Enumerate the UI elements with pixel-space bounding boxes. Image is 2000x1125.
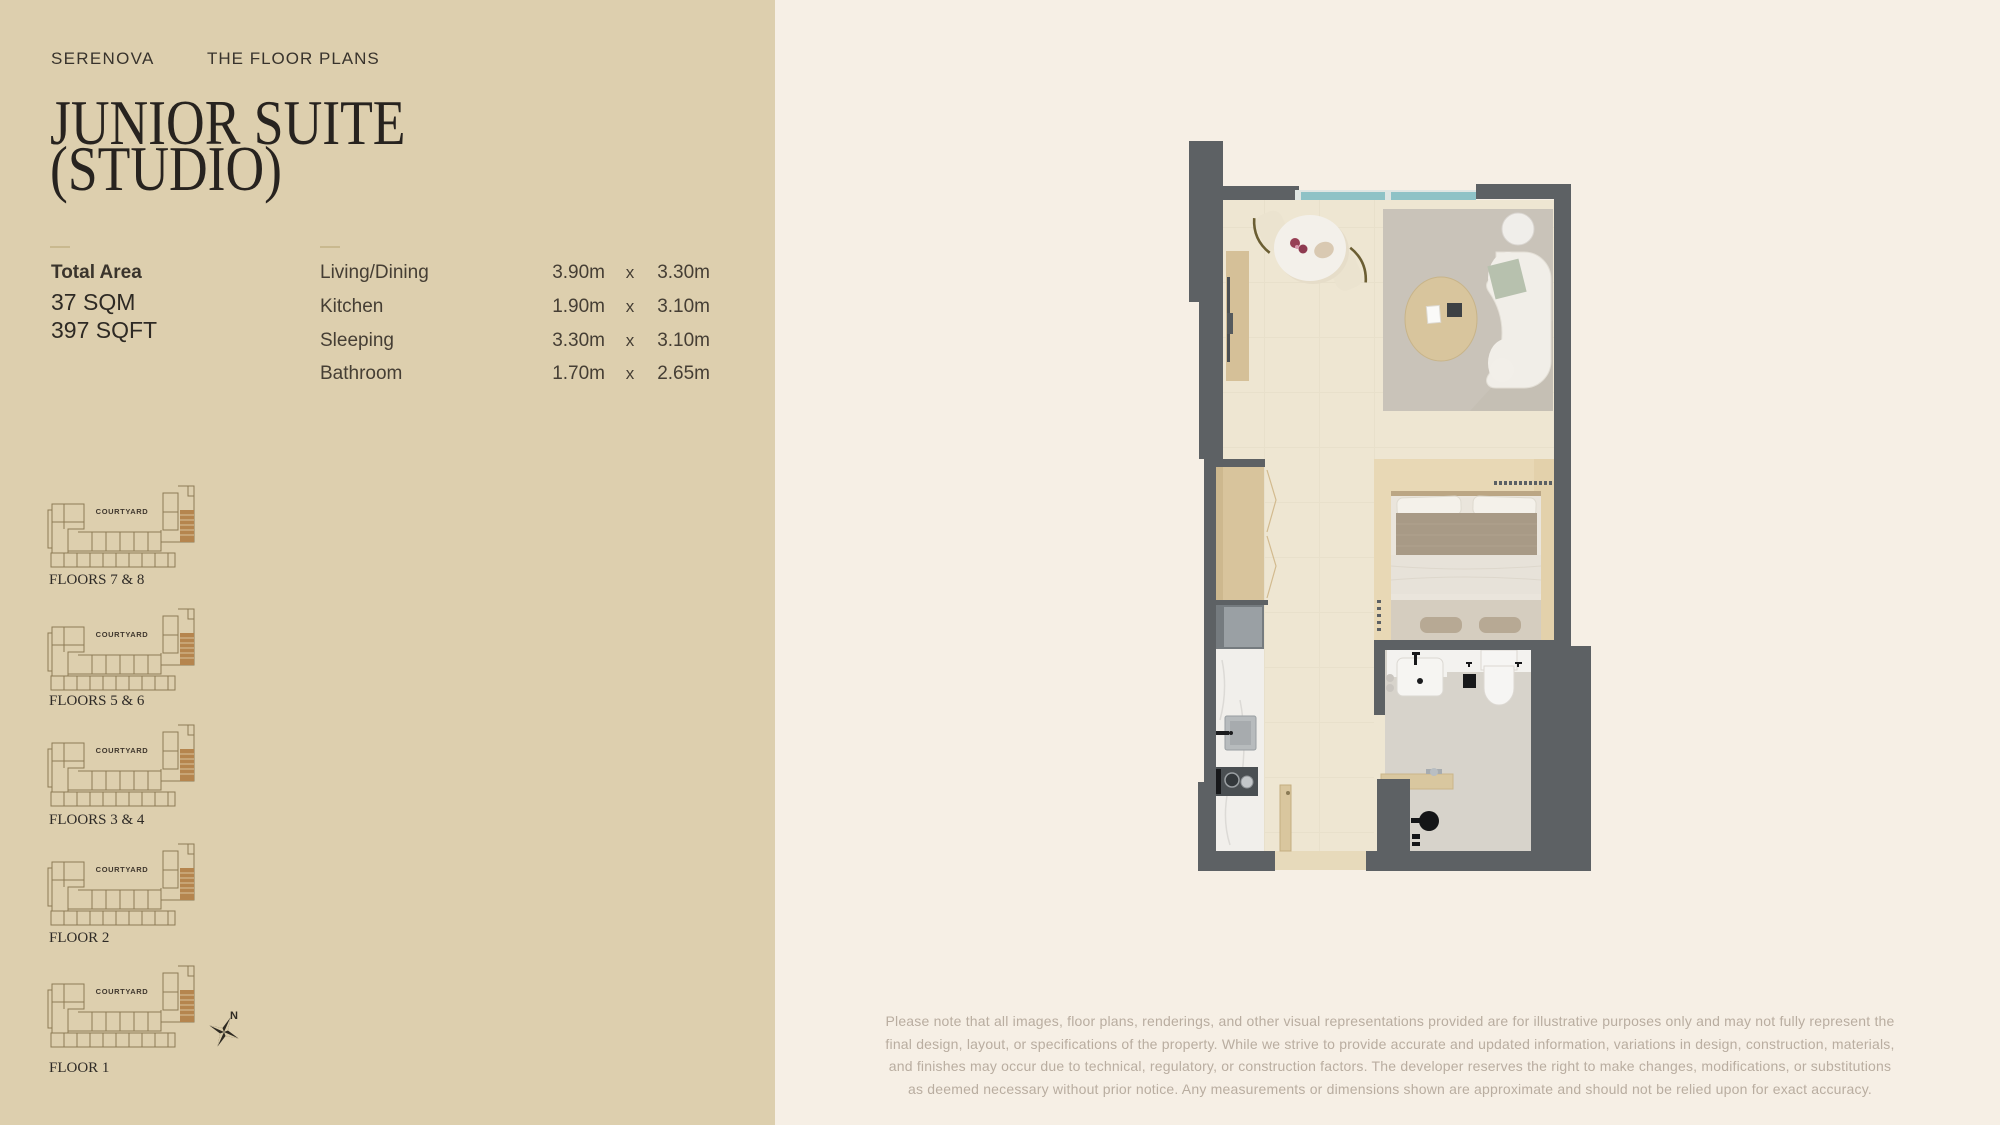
svg-text:N: N [230,1010,238,1022]
